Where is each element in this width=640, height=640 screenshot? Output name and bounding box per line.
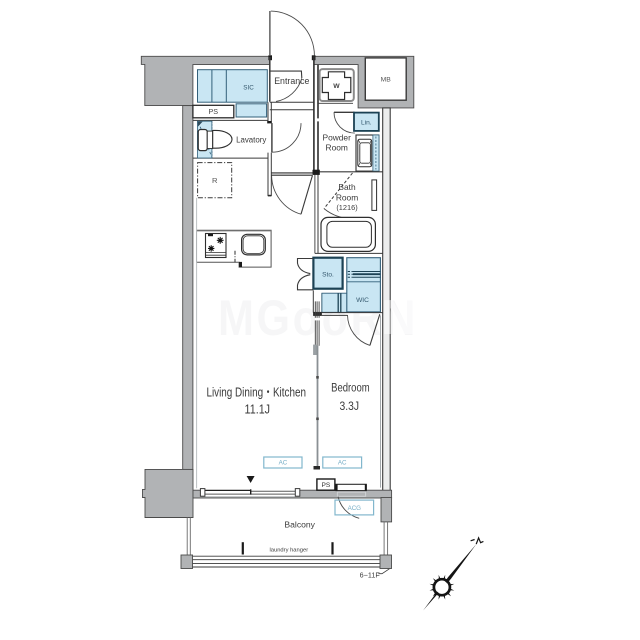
svg-text:MB: MB <box>381 76 392 83</box>
svg-text:W: W <box>333 83 340 90</box>
svg-text:11.1J: 11.1J <box>245 403 271 417</box>
svg-text:Entrance: Entrance <box>274 76 309 86</box>
svg-text:Room: Room <box>336 192 358 202</box>
svg-text:(1216): (1216) <box>336 203 357 212</box>
svg-text:SIC: SIC <box>243 84 254 91</box>
svg-text:AC: AC <box>338 460 347 467</box>
svg-text:ACG: ACG <box>348 505 362 512</box>
svg-text:Lavatory: Lavatory <box>236 136 266 145</box>
svg-text:PS: PS <box>209 107 219 116</box>
svg-text:R: R <box>212 176 218 185</box>
svg-text:WIC: WIC <box>356 297 369 304</box>
svg-text:laundry hanger: laundry hanger <box>269 548 308 554</box>
svg-text:Lin.: Lin. <box>361 120 372 127</box>
svg-text:AC: AC <box>279 460 288 467</box>
svg-text:PS: PS <box>322 482 331 489</box>
svg-text:Balcony: Balcony <box>284 519 315 529</box>
svg-text:N: N <box>381 291 416 345</box>
svg-text:6−11F: 6−11F <box>360 571 381 580</box>
svg-text:Bath: Bath <box>338 182 356 192</box>
svg-text:Sto.: Sto. <box>322 271 334 278</box>
svg-text:Bedroom: Bedroom <box>331 380 370 394</box>
svg-text:3.3J: 3.3J <box>340 399 360 413</box>
svg-text:Room: Room <box>326 143 348 153</box>
svg-text:Powder: Powder <box>322 133 351 143</box>
svg-text:Living Dining・Kitchen: Living Dining・Kitchen <box>206 384 306 399</box>
